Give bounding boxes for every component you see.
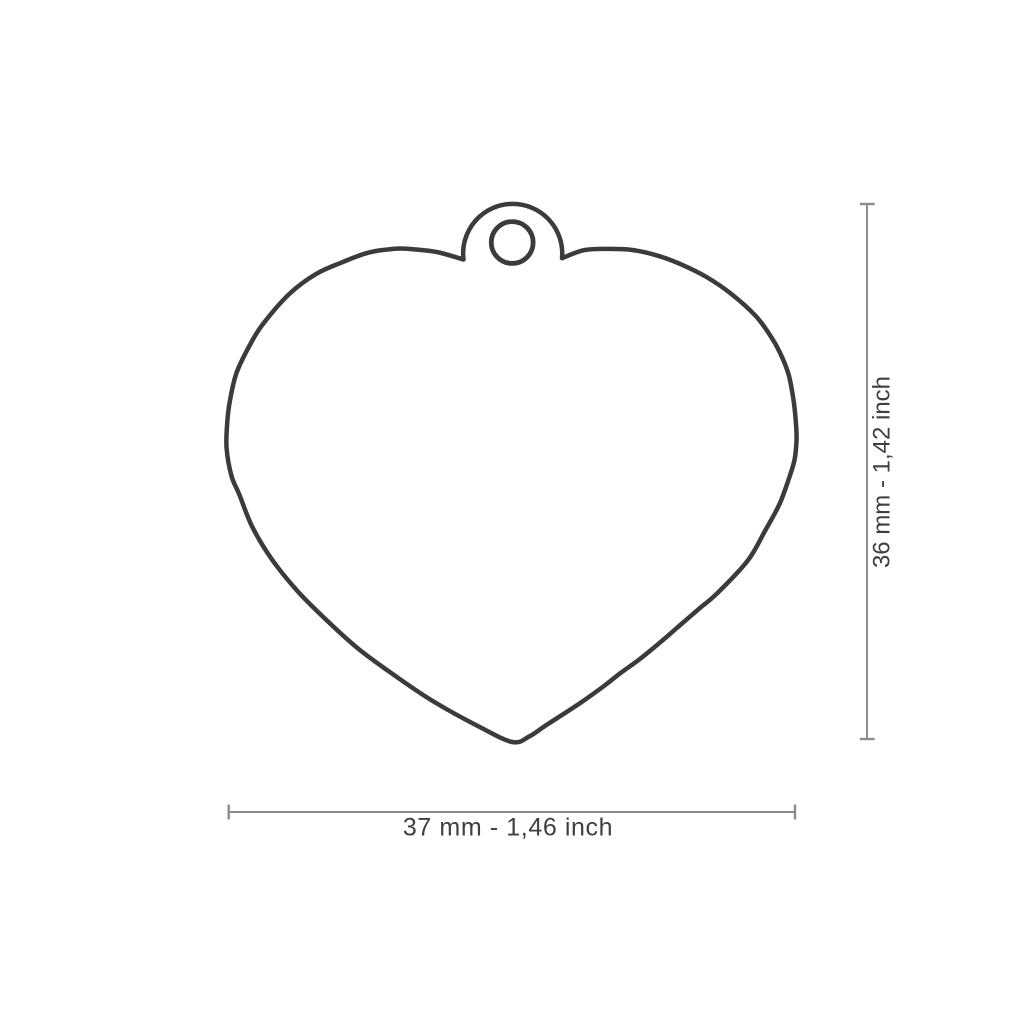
svg-text:37 mm - 1,46 inch: 37 mm - 1,46 inch (403, 814, 613, 842)
svg-text:36 mm - 1,42 inch: 36 mm - 1,42 inch (869, 376, 896, 568)
